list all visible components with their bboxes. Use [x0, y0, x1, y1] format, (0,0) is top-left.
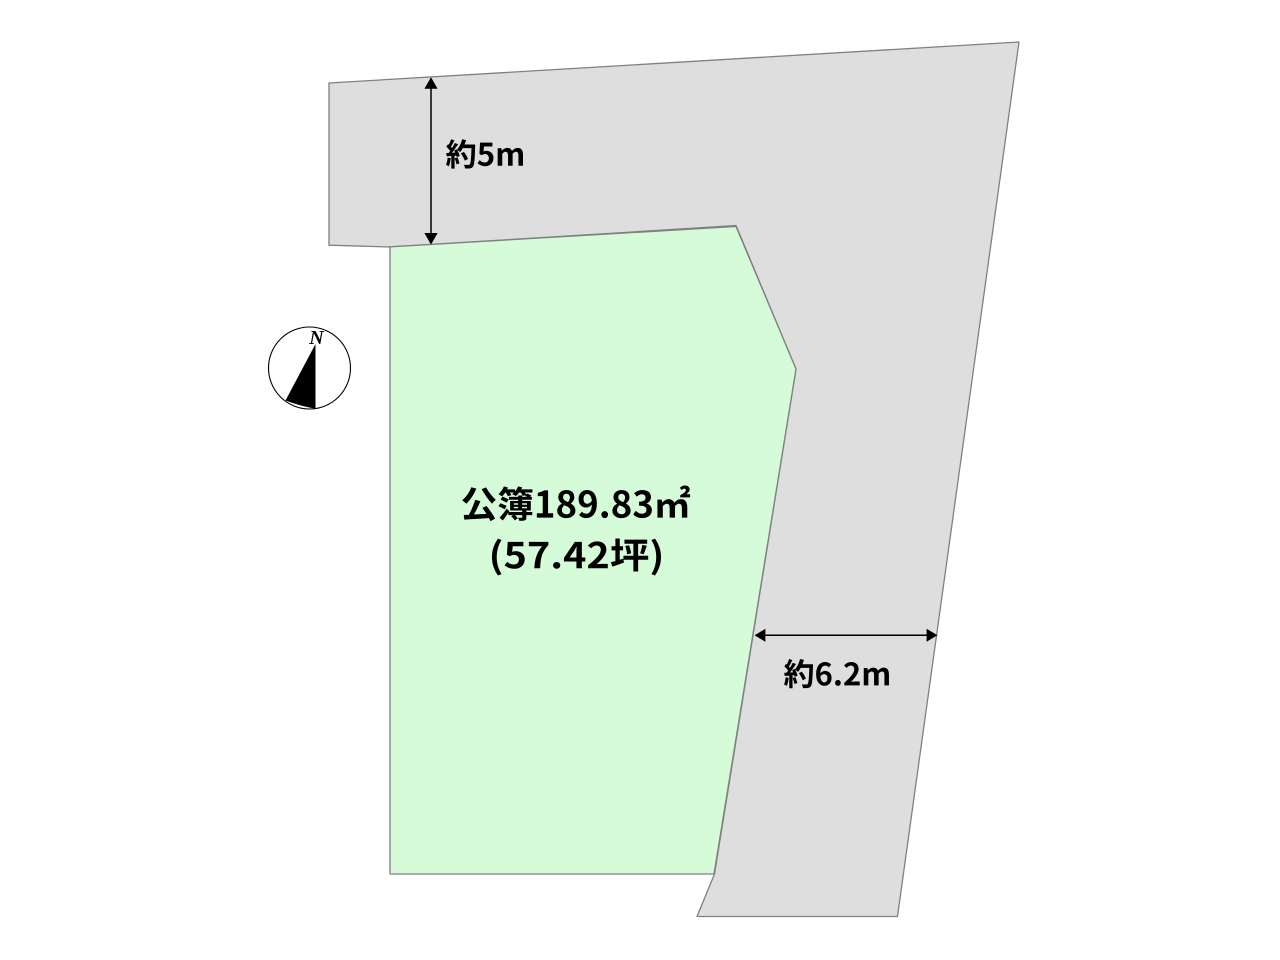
svg-text:N: N [308, 327, 325, 349]
